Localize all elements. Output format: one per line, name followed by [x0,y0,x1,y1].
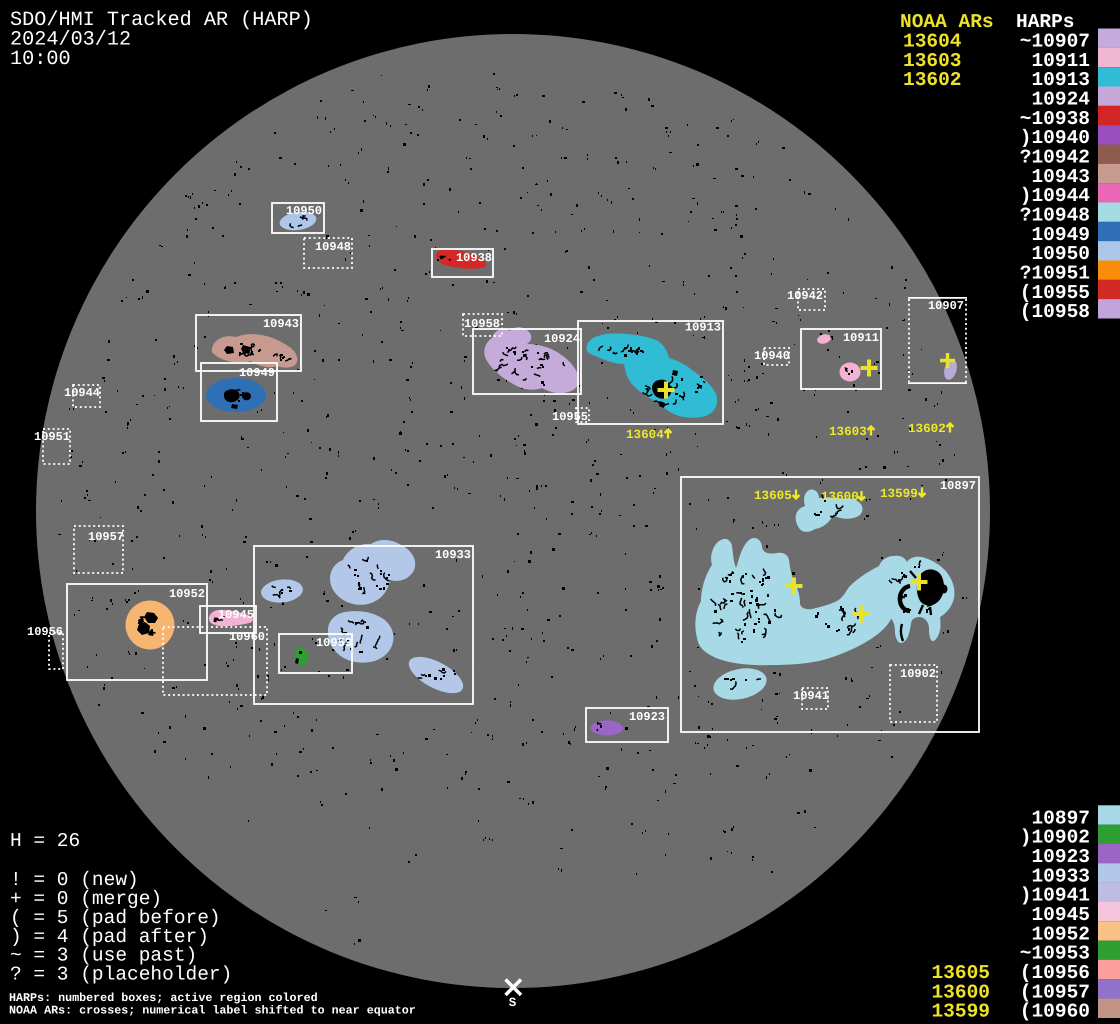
svg-text:10949: 10949 [239,366,275,380]
svg-text:10948: 10948 [315,240,351,254]
svg-text:10957: 10957 [88,530,124,544]
svg-text:(10958: (10958 [1020,301,1090,323]
svg-text:10933: 10933 [435,548,471,562]
svg-text:10943: 10943 [263,317,299,331]
svg-text:10924: 10924 [544,332,580,346]
svg-text:13602: 13602 [908,422,946,436]
svg-text:13605: 13605 [754,489,792,503]
svg-text:(10960: (10960 [1020,1001,1090,1023]
svg-text:10941: 10941 [793,689,829,703]
svg-text:10942: 10942 [787,289,823,303]
svg-text:10951: 10951 [34,430,70,444]
svg-text:H = 26: H = 26 [10,830,80,852]
svg-text:13604: 13604 [626,428,664,442]
svg-text:10:00: 10:00 [10,48,71,71]
svg-text:10953: 10953 [316,636,352,650]
svg-text:10956: 10956 [27,625,63,639]
svg-text:S: S [509,996,517,1010]
svg-text:10913: 10913 [685,321,721,335]
svg-text:NOAA ARs: crosses; numerical l: NOAA ARs: crosses; numerical label shift… [9,1004,416,1018]
svg-text:13599: 13599 [880,487,918,501]
svg-text:10950: 10950 [286,204,322,218]
svg-text:10907: 10907 [928,299,964,313]
svg-text:10902: 10902 [900,667,936,681]
svg-text:10955: 10955 [552,410,588,424]
svg-text:10940: 10940 [754,349,790,363]
svg-text:? = 3 (placeholder): ? = 3 (placeholder) [10,964,232,986]
svg-text:13600: 13600 [821,490,859,504]
svg-text:10938: 10938 [456,251,492,265]
svg-text:10952: 10952 [169,587,205,601]
svg-text:10960: 10960 [229,630,265,644]
svg-text:13599: 13599 [931,1001,990,1023]
svg-text:10944: 10944 [64,386,100,400]
svg-text:10958: 10958 [464,317,500,331]
svg-text:10923: 10923 [629,710,665,724]
svg-text:13603: 13603 [829,425,867,439]
svg-text:10945: 10945 [218,608,254,622]
svg-text:10897: 10897 [940,479,976,493]
svg-text:13602: 13602 [903,69,962,91]
svg-text:10911: 10911 [843,331,879,345]
